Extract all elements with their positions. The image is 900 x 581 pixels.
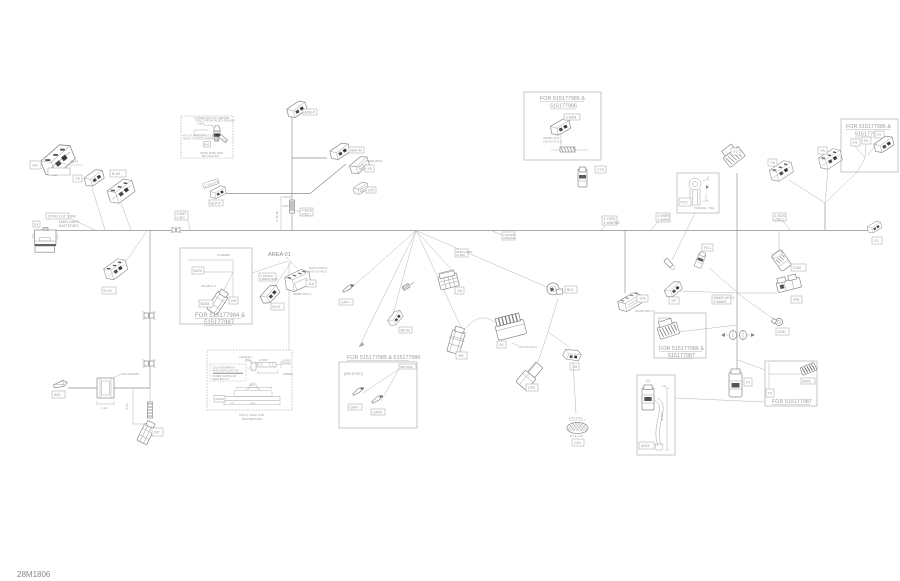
svg-text:28M1806: 28M1806 bbox=[17, 570, 51, 579]
svg-text:B-H1: B-H1 bbox=[273, 305, 281, 309]
svg-text:BU-M: BU-M bbox=[401, 329, 410, 333]
svg-text:F2: F2 bbox=[877, 133, 881, 137]
svg-text:CAP8: CAP8 bbox=[373, 411, 382, 415]
svg-text:HOLD: HOLD bbox=[283, 204, 291, 208]
svg-text:1 2 3 4 5 6: 1 2 3 4 5 6 bbox=[569, 416, 583, 420]
svg-text:(775): (775) bbox=[125, 403, 129, 410]
svg-text:CP5: CP5 bbox=[528, 386, 535, 390]
svg-text:(SPARE): (SPARE) bbox=[282, 363, 292, 366]
svg-text:AREA 01: AREA 01 bbox=[268, 252, 291, 258]
svg-text:PC2: PC2 bbox=[681, 201, 688, 205]
svg-text:FOR 515177986 &: FOR 515177986 & bbox=[846, 124, 891, 130]
svg-text:(JUMPER): (JUMPER) bbox=[217, 253, 230, 257]
svg-text:1 1/2: 1 1/2 bbox=[101, 406, 108, 410]
svg-text:40 MM: 40 MM bbox=[660, 412, 664, 421]
svg-text:(1 OF M): (1 OF M) bbox=[275, 211, 279, 222]
svg-text:WAKE BUS KIT: WAKE BUS KIT bbox=[213, 378, 230, 381]
svg-text:SPARK BUS 2: SPARK BUS 2 bbox=[293, 292, 312, 296]
svg-text:(250): (250) bbox=[250, 403, 255, 405]
svg-text:45: 45 bbox=[500, 343, 504, 347]
svg-text:A5: A5 bbox=[458, 289, 462, 293]
svg-text:CAP+: CAP+ bbox=[350, 406, 360, 410]
svg-text:F2: F2 bbox=[734, 150, 738, 154]
svg-text:BAT2: BAT2 bbox=[194, 269, 203, 273]
svg-text:KIT-0.7X WAKE LGH.GO (LED): KIT-0.7X WAKE LGH.GO (LED) bbox=[183, 135, 216, 138]
svg-text:WHEN INSTALLING THE: WHEN INSTALLING THE bbox=[213, 370, 240, 373]
svg-text:M3: M3 bbox=[33, 164, 38, 168]
svg-text:MODE: MODE bbox=[216, 397, 225, 401]
svg-text:DRL HOLD OUT: DRL HOLD OUT bbox=[202, 156, 220, 158]
svg-text:CH1: CH1 bbox=[574, 441, 581, 445]
svg-text:T5: T5 bbox=[768, 392, 772, 396]
svg-text:FOR 515177985 & 515177986: FOR 515177985 & 515177986 bbox=[347, 355, 420, 361]
svg-text:B2E8: B2E8 bbox=[201, 302, 210, 306]
svg-text:WHT: WHT bbox=[70, 160, 79, 164]
svg-text:BATTERIES: BATTERIES bbox=[59, 224, 79, 228]
svg-text:T.5: T.5 bbox=[662, 384, 666, 388]
svg-text:(YEL): (YEL) bbox=[302, 213, 311, 217]
svg-text:ASSIST TO WATER REM.BAR: ASSIST TO WATER REM.BAR bbox=[183, 138, 215, 141]
svg-text:M0: M0 bbox=[459, 354, 464, 358]
svg-text:A002: A002 bbox=[803, 380, 811, 384]
svg-text:F5: F5 bbox=[76, 177, 80, 181]
svg-text:4 BRAKE: 4 BRAKE bbox=[503, 236, 515, 240]
svg-text:2 YELLOW: 2 YELLOW bbox=[204, 179, 220, 187]
svg-text:WAKE WRT2: WAKE WRT2 bbox=[366, 159, 383, 163]
svg-text:TORQUE : 7Nm: TORQUE : 7Nm bbox=[694, 206, 715, 210]
svg-text:20A (BLK) 2: 20A (BLK) 2 bbox=[201, 284, 217, 288]
svg-text:515177986: 515177986 bbox=[550, 104, 577, 110]
svg-text:41 BLK: 41 BLK bbox=[456, 253, 465, 257]
svg-text:D'P: D'P bbox=[154, 431, 160, 435]
svg-text:515177987: 515177987 bbox=[668, 353, 695, 359]
svg-text:B2H-P: B2H-P bbox=[305, 111, 316, 115]
svg-text:E1: E1 bbox=[875, 239, 879, 243]
svg-text:STRG LGT 1 SW: STRG LGT 1 SW bbox=[48, 215, 76, 219]
svg-text:B2H-M: B2H-M bbox=[351, 149, 362, 153]
svg-text:515177987: 515177987 bbox=[204, 320, 235, 326]
svg-text:TP5: TP5 bbox=[639, 297, 646, 301]
svg-text:F8: F8 bbox=[771, 161, 775, 165]
svg-text:DETAIL PANEL TRIM: DETAIL PANEL TRIM bbox=[201, 152, 223, 155]
svg-text:PC1: PC1 bbox=[704, 246, 711, 250]
svg-text:(#5): (#5) bbox=[230, 403, 234, 405]
svg-text:FA: FA bbox=[864, 139, 869, 143]
svg-text:B-H3: B-H3 bbox=[112, 172, 120, 176]
svg-text:A003: A003 bbox=[641, 444, 649, 448]
svg-text:(SPARE): (SPARE) bbox=[283, 373, 293, 376]
svg-text:4 WIRE: 4 WIRE bbox=[658, 218, 671, 222]
svg-text:HARNS BAT2: HARNS BAT2 bbox=[261, 277, 279, 281]
svg-text:RFID BRACKET: RFID BRACKET bbox=[242, 417, 263, 421]
svg-text:TIGHTEN AS 8-0.7 N.m BEFORE: TIGHTEN AS 8-0.7 N.m BEFORE bbox=[194, 117, 229, 120]
svg-text:2W: 2W bbox=[231, 299, 237, 303]
svg-text:4 WAKE: 4 WAKE bbox=[714, 300, 728, 304]
svg-text:YDL GO HYLS: YDL GO HYLS bbox=[543, 140, 562, 144]
svg-text:FOR 515177987: FOR 515177987 bbox=[772, 399, 812, 405]
svg-text:4 WARN2: 4 WARN2 bbox=[604, 221, 620, 225]
svg-text:POWER JACKING SW: POWER JACKING SW bbox=[213, 375, 237, 378]
svg-text:800 GRIP: 800 GRIP bbox=[401, 365, 413, 369]
svg-text:P55: P55 bbox=[793, 298, 799, 302]
svg-text:B-H2: B-H2 bbox=[104, 289, 112, 293]
svg-text:FA: FA bbox=[821, 149, 826, 153]
svg-text:RH5: RH5 bbox=[204, 144, 210, 147]
svg-text:GND: GND bbox=[778, 330, 786, 334]
svg-text:HIS GO HYLS: HIS GO HYLS bbox=[309, 270, 327, 274]
svg-text:HIS BO DPLS 4: HIS BO DPLS 4 bbox=[635, 309, 655, 313]
svg-text:(900 ETEC): (900 ETEC) bbox=[344, 372, 363, 376]
svg-text:CT5: CT5 bbox=[597, 168, 604, 172]
svg-text:(250): (250) bbox=[249, 384, 255, 387]
svg-text:1/2 BOX: 1/2 BOX bbox=[259, 359, 268, 362]
svg-text:M J E 1 H5: M J E 1 H5 bbox=[570, 434, 583, 438]
svg-text:BLK-P: BLK-P bbox=[211, 202, 222, 206]
svg-text:AT5: AT5 bbox=[368, 189, 374, 193]
svg-text:BL5: BL5 bbox=[567, 288, 573, 292]
svg-text:3-H2M: 3-H2M bbox=[566, 116, 577, 120]
svg-text:F9: F9 bbox=[853, 141, 857, 145]
svg-text:B3: B3 bbox=[35, 223, 39, 227]
svg-text:FOR 515177986 &: FOR 515177986 & bbox=[659, 346, 704, 352]
svg-text:TORQ. TI-RD INSTALLED. RE WORK: TORQ. TI-RD INSTALLED. RE WORK bbox=[195, 120, 235, 123]
svg-text:HIS GO HYLS: HIS GO HYLS bbox=[519, 345, 537, 349]
svg-text:(YEL): (YEL) bbox=[775, 217, 784, 221]
svg-text:COIL (SPARK): COIL (SPARK) bbox=[121, 372, 139, 376]
svg-text:HOLD: HOLD bbox=[283, 195, 291, 199]
svg-text:A03: A03 bbox=[54, 393, 60, 397]
svg-text:DP: DP bbox=[672, 299, 678, 303]
svg-text:COLD WEATHER KIT: COLD WEATHER KIT bbox=[213, 367, 236, 370]
svg-text:K5: K5 bbox=[368, 167, 372, 171]
svg-text:T5: T5 bbox=[746, 381, 750, 385]
svg-text:COM: COM bbox=[793, 266, 801, 270]
svg-text:X AXIS: X AXIS bbox=[197, 123, 205, 126]
svg-text:J1A: J1A bbox=[308, 282, 315, 286]
svg-text:CAP+: CAP+ bbox=[341, 301, 351, 305]
svg-text:FOR 515177984 &: FOR 515177984 & bbox=[195, 313, 245, 319]
svg-text:FOR 515177985 &: FOR 515177985 & bbox=[540, 96, 585, 102]
svg-text:4 BO: 4 BO bbox=[177, 216, 185, 220]
